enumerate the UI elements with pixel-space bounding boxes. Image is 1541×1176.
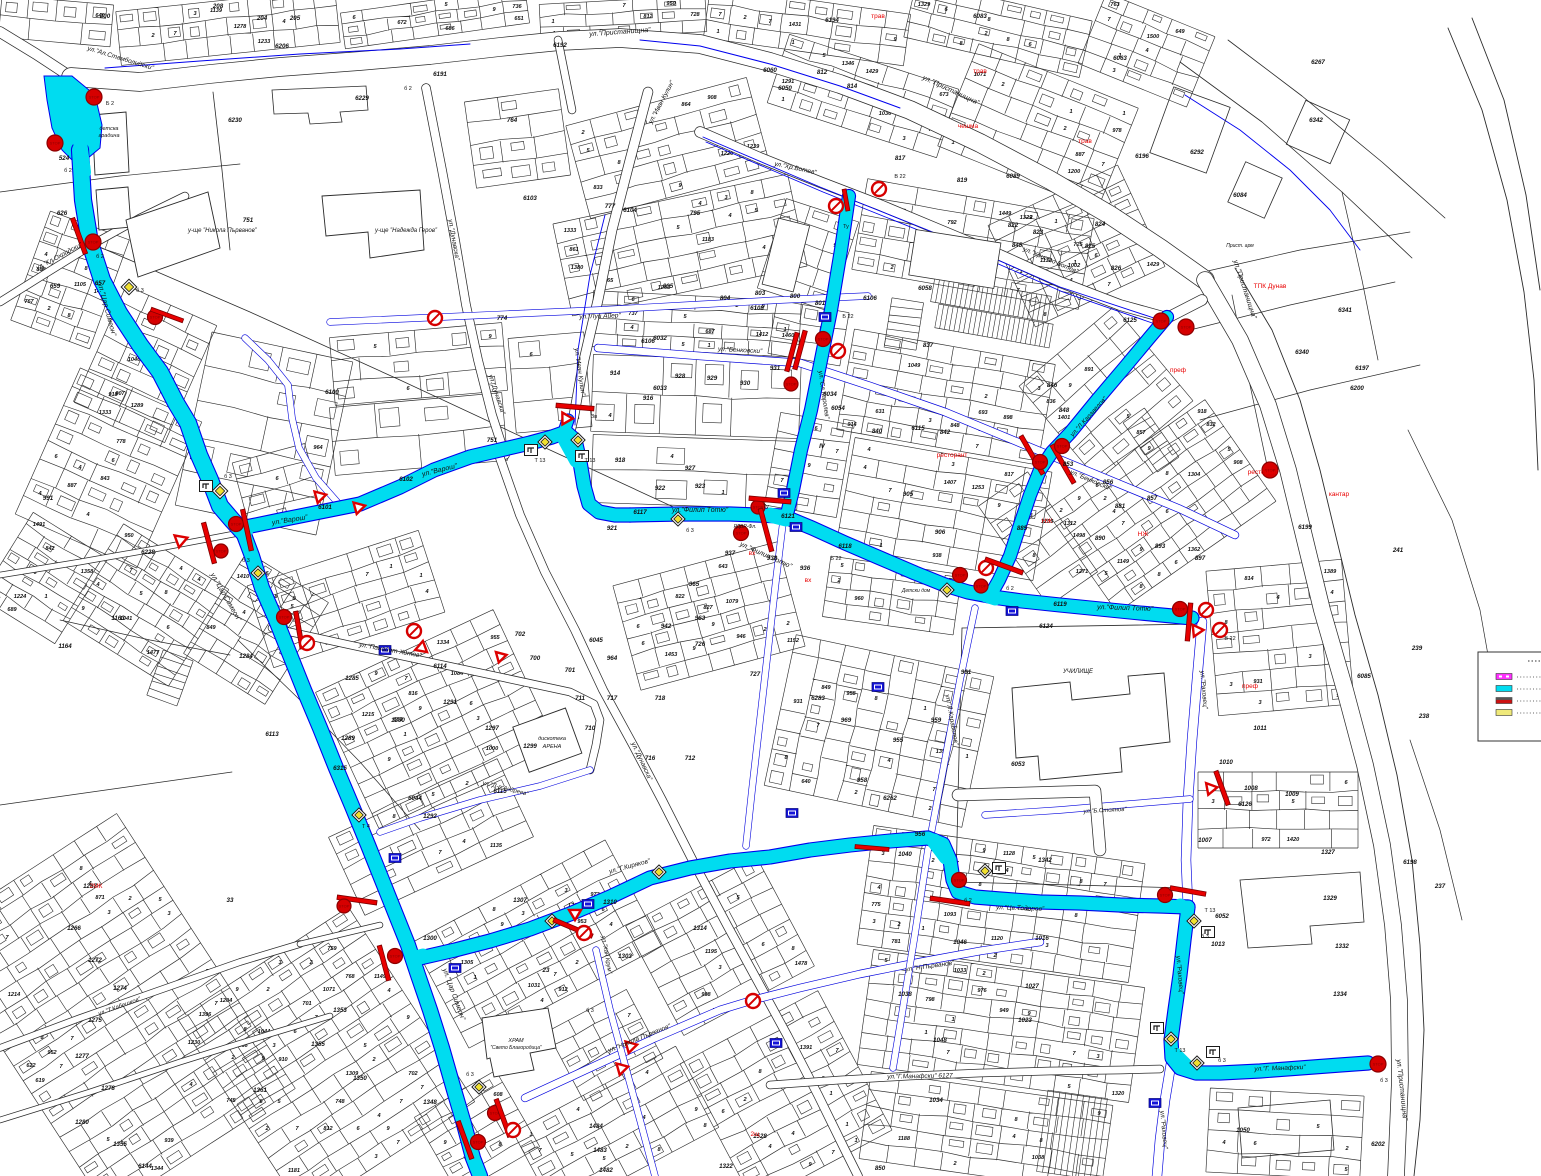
svg-text:1303: 1303 [618, 953, 632, 960]
svg-text:1016: 1016 [1035, 935, 1049, 942]
svg-text:1380: 1380 [571, 265, 584, 271]
svg-text:955: 955 [893, 737, 904, 744]
svg-text:6341: 6341 [1338, 307, 1352, 314]
svg-text:921: 921 [607, 525, 618, 532]
svg-text:НЖ: НЖ [1042, 518, 1053, 525]
svg-text:952: 952 [47, 1050, 57, 1056]
svg-text:6114: 6114 [433, 663, 447, 670]
svg-text:857: 857 [1147, 495, 1158, 502]
svg-text:823: 823 [1033, 229, 1044, 236]
svg-text:1200: 1200 [1068, 169, 1081, 175]
svg-text:1491: 1491 [33, 522, 45, 528]
svg-text:1278: 1278 [234, 24, 247, 30]
svg-text:1214: 1214 [8, 992, 21, 998]
svg-text:871: 871 [95, 895, 104, 901]
svg-text:524: 524 [59, 155, 70, 162]
svg-text:965: 965 [689, 581, 700, 588]
svg-text:б 3: б 3 [1218, 1058, 1226, 1064]
svg-text:1410: 1410 [237, 574, 250, 580]
svg-text:1023: 1023 [1018, 1017, 1032, 1024]
svg-text:826: 826 [1111, 265, 1122, 272]
svg-text:1271: 1271 [1076, 569, 1088, 575]
svg-text:626: 626 [57, 210, 68, 217]
svg-text:1396: 1396 [199, 1012, 212, 1018]
svg-text:6292: 6292 [1190, 149, 1204, 156]
svg-text:712: 712 [685, 755, 696, 762]
svg-text:200: 200 [99, 13, 111, 20]
svg-text:РДВР-Фл.: РДВР-Фл. [734, 524, 757, 530]
svg-text:1304: 1304 [1188, 472, 1201, 478]
svg-text:1120: 1120 [991, 936, 1004, 942]
svg-text:649: 649 [1175, 29, 1185, 35]
svg-text:689: 689 [7, 607, 17, 613]
svg-text:6100: 6100 [325, 389, 339, 396]
svg-text:6106: 6106 [641, 338, 655, 345]
svg-text:6144: 6144 [138, 1163, 152, 1170]
svg-text:961: 961 [961, 669, 972, 676]
svg-text:1289: 1289 [341, 735, 355, 742]
svg-text:1010: 1010 [1219, 759, 1233, 766]
svg-text:891: 891 [1084, 367, 1093, 373]
svg-text:1449: 1449 [999, 211, 1012, 217]
svg-text:6126: 6126 [1238, 801, 1252, 808]
svg-text:1195: 1195 [705, 949, 718, 955]
svg-text:1: 1 [965, 754, 968, 760]
svg-text:1320: 1320 [1112, 1091, 1125, 1097]
svg-text:1484: 1484 [589, 1123, 603, 1130]
svg-text:1275: 1275 [88, 1017, 102, 1024]
svg-text:6089: 6089 [1006, 173, 1020, 180]
svg-text:1: 1 [473, 975, 476, 981]
svg-text:887: 887 [67, 483, 77, 489]
svg-text:1333: 1333 [99, 410, 112, 416]
svg-text:1: 1 [845, 1122, 848, 1128]
svg-text:801: 801 [815, 300, 826, 307]
svg-text:1290: 1290 [391, 717, 405, 724]
svg-text:6229: 6229 [355, 95, 369, 102]
svg-text:848: 848 [950, 423, 960, 429]
svg-text:STOP: STOP [1160, 893, 1171, 898]
svg-text:STOP: STOP [216, 549, 227, 554]
svg-text:у-ще ”Надежда Геров”: у-ще ”Надежда Геров” [374, 228, 438, 234]
svg-text:IV: IV [819, 443, 826, 450]
svg-text:трав: трав [1078, 138, 1092, 145]
svg-text:STOP: STOP [50, 141, 61, 146]
svg-text:1007: 1007 [1198, 837, 1212, 844]
svg-text:STOP: STOP [1181, 325, 1192, 330]
svg-text:1128: 1128 [1003, 851, 1016, 857]
svg-text:1348: 1348 [423, 1099, 437, 1106]
svg-text:918: 918 [108, 392, 118, 398]
svg-text:1329: 1329 [918, 2, 931, 8]
svg-text:822: 822 [1008, 222, 1019, 229]
svg-text:6198: 6198 [1403, 859, 1417, 866]
svg-text:728: 728 [690, 12, 700, 18]
svg-text:657: 657 [95, 280, 106, 287]
svg-text:1346: 1346 [842, 61, 855, 67]
svg-text:STOP: STOP [231, 522, 242, 527]
svg-text:В 22: В 22 [1224, 636, 1235, 642]
svg-text:Т 13: Т 13 [584, 458, 595, 464]
svg-text:Ту: Ту [843, 224, 849, 230]
svg-text:1299: 1299 [523, 743, 537, 750]
svg-text:1: 1 [829, 1091, 832, 1097]
svg-text:ресторант: ресторант [1248, 469, 1279, 476]
svg-text:1420: 1420 [1287, 837, 1300, 843]
svg-text:969: 969 [841, 717, 852, 724]
svg-text:6033: 6033 [653, 385, 667, 392]
svg-text:преф: преф [1170, 367, 1187, 374]
svg-text:812: 812 [817, 69, 828, 76]
svg-text:710: 710 [585, 725, 596, 732]
svg-text:659: 659 [50, 283, 61, 290]
svg-text:864: 864 [681, 102, 691, 108]
svg-text:1274: 1274 [113, 985, 127, 992]
svg-text:Зв: Зв [591, 414, 597, 420]
svg-text:1332: 1332 [1335, 943, 1349, 950]
svg-text:845: 845 [1012, 242, 1023, 249]
svg-text:827: 827 [703, 605, 713, 611]
svg-text:Детски дом: Детски дом [901, 588, 931, 594]
svg-text:Т 4: Т 4 [362, 824, 370, 830]
svg-text:956: 956 [915, 831, 926, 838]
svg-text:STOP: STOP [1057, 444, 1068, 449]
svg-text:842: 842 [45, 546, 55, 552]
svg-text:6083: 6083 [973, 13, 987, 20]
svg-text:840: 840 [872, 428, 883, 435]
svg-text:1389: 1389 [1324, 569, 1337, 575]
svg-text:958: 958 [857, 777, 868, 784]
svg-text:1280: 1280 [75, 1119, 89, 1126]
svg-text:929: 929 [707, 375, 718, 382]
svg-text:978: 978 [1112, 128, 1122, 134]
svg-text:6117: 6117 [633, 509, 647, 516]
svg-text:717: 717 [607, 695, 618, 702]
svg-text:STOP: STOP [89, 95, 100, 100]
svg-text:1266: 1266 [67, 925, 81, 932]
svg-text:б 3: б 3 [136, 288, 144, 294]
svg-text:890: 890 [1095, 535, 1106, 542]
svg-text:ресторант: ресторант [937, 452, 968, 459]
svg-text:б 2: б 2 [96, 254, 104, 260]
svg-text:дискотека: дискотека [538, 736, 566, 742]
svg-text:б 2: б 2 [64, 168, 72, 174]
svg-text:964: 964 [313, 445, 323, 451]
svg-text:6032: 6032 [653, 335, 667, 342]
svg-text:1031: 1031 [528, 983, 540, 989]
svg-text:1500: 1500 [1147, 34, 1160, 40]
svg-text:1429: 1429 [866, 69, 879, 75]
svg-text:795: 795 [690, 210, 701, 217]
svg-text:1149: 1149 [1117, 559, 1130, 565]
svg-text:937: 937 [725, 550, 736, 557]
svg-text:748: 748 [335, 1099, 345, 1105]
svg-text:6121: 6121 [781, 513, 795, 520]
svg-text:918: 918 [1197, 409, 1207, 415]
svg-text:преф: преф [1242, 683, 1259, 690]
svg-text:1000: 1000 [486, 746, 499, 752]
svg-text:Б 2: Б 2 [106, 101, 114, 107]
svg-text:детска: детска [100, 126, 119, 132]
svg-text:914: 914 [847, 422, 857, 428]
svg-text:6101: 6101 [318, 504, 332, 511]
svg-text:946: 946 [736, 634, 746, 640]
svg-text:814: 814 [1244, 576, 1254, 582]
svg-text:6058: 6058 [918, 285, 932, 292]
svg-text:716: 716 [645, 755, 656, 762]
svg-text:931: 931 [770, 365, 781, 372]
svg-text:ул.”Г.Манафски” 6127: ул.”Г.Манафски” 6127 [886, 1072, 953, 1080]
svg-text:1: 1 [389, 564, 392, 570]
svg-text:1233: 1233 [258, 39, 271, 45]
svg-text:1391: 1391 [800, 1045, 812, 1051]
svg-text:б 3: б 3 [686, 528, 694, 534]
svg-text:6202: 6202 [1371, 1141, 1385, 1148]
svg-text:822: 822 [675, 594, 685, 600]
svg-text:910: 910 [278, 1057, 288, 1063]
svg-text:б 3: б 3 [1201, 934, 1209, 940]
svg-text:846: 846 [1047, 382, 1058, 389]
svg-text:ХРАМ: ХРАМ [507, 1038, 524, 1044]
svg-text:1431: 1431 [789, 22, 801, 28]
svg-text:6230: 6230 [228, 117, 242, 124]
svg-text:817: 817 [895, 155, 906, 162]
svg-text:964: 964 [607, 655, 618, 662]
svg-text:819: 819 [957, 177, 968, 184]
svg-text:6228: 6228 [141, 549, 155, 556]
svg-text:897: 897 [1195, 555, 1206, 562]
svg-text:1011: 1011 [1253, 725, 1267, 732]
svg-text:1: 1 [921, 926, 924, 932]
svg-text:1310: 1310 [603, 899, 617, 906]
svg-text:кантар: кантар [1329, 491, 1350, 498]
svg-text:631: 631 [875, 409, 884, 415]
svg-text:963: 963 [695, 615, 706, 622]
svg-text:930: 930 [740, 380, 751, 387]
svg-text:774: 774 [497, 315, 508, 322]
svg-text:1040: 1040 [898, 851, 912, 858]
svg-text:STOP: STOP [736, 531, 747, 536]
svg-text:1329: 1329 [1323, 895, 1337, 902]
svg-text:6262: 6262 [883, 795, 897, 802]
svg-text:711: 711 [575, 695, 585, 702]
svg-text:998: 998 [701, 992, 711, 998]
svg-text:842: 842 [940, 429, 951, 436]
svg-text:608: 608 [493, 1092, 503, 1098]
svg-text:1: 1 [403, 732, 406, 738]
svg-text:STOP: STOP [1035, 460, 1046, 465]
svg-text:898: 898 [1003, 415, 1013, 421]
svg-text:843: 843 [100, 476, 110, 482]
svg-text:6104: 6104 [623, 207, 637, 214]
svg-text:1353: 1353 [333, 1007, 347, 1014]
svg-text:800: 800 [790, 293, 801, 300]
svg-text:1048: 1048 [933, 1037, 947, 1044]
svg-text:1009: 1009 [1285, 791, 1299, 798]
svg-text:1: 1 [791, 40, 794, 46]
svg-text:б 3: б 3 [586, 1008, 594, 1014]
svg-text:б 2: б 2 [964, 898, 972, 904]
svg-text:Б 22: Б 22 [842, 314, 853, 320]
svg-text:6060: 6060 [763, 67, 777, 74]
svg-text:б 2: б 2 [1006, 586, 1014, 592]
svg-text:1050: 1050 [1236, 1127, 1250, 1134]
svg-text:701: 701 [565, 667, 576, 674]
svg-text:6194: 6194 [825, 17, 839, 24]
svg-text:1278: 1278 [101, 1085, 115, 1092]
svg-text:1477: 1477 [147, 650, 160, 656]
svg-text:727: 727 [750, 671, 761, 678]
svg-text:949: 949 [999, 1008, 1009, 1014]
svg-text:6102: 6102 [399, 476, 413, 483]
svg-text:6267: 6267 [1311, 59, 1325, 66]
svg-text:6054: 6054 [831, 405, 845, 412]
svg-text:1: 1 [781, 97, 784, 103]
svg-text:885: 885 [1017, 525, 1028, 532]
svg-text:1105: 1105 [74, 282, 87, 288]
svg-text:STOP: STOP [786, 382, 797, 387]
svg-text:1334: 1334 [1333, 991, 1347, 998]
svg-text:950: 950 [124, 533, 134, 539]
svg-text:1033: 1033 [954, 968, 967, 974]
svg-text:Прист. арм: Прист. арм [1226, 243, 1254, 249]
svg-text:1291: 1291 [443, 699, 457, 706]
svg-text:861: 861 [569, 247, 578, 253]
svg-text:1297: 1297 [485, 725, 499, 732]
svg-text:781: 781 [891, 939, 900, 945]
svg-text:1215: 1215 [362, 712, 375, 718]
svg-text:33: 33 [227, 897, 234, 904]
svg-text:972: 972 [1261, 837, 1271, 843]
svg-text:1483: 1483 [593, 1147, 607, 1154]
svg-text:STOP: STOP [955, 573, 966, 578]
svg-text:2МК: 2МК [90, 883, 103, 890]
svg-text:STOP: STOP [88, 240, 99, 245]
svg-text:1322: 1322 [719, 1163, 733, 1170]
svg-text:STOP: STOP [818, 337, 829, 342]
svg-text:751: 751 [487, 437, 498, 444]
svg-text:1478: 1478 [795, 961, 808, 967]
svg-text:204: 204 [256, 15, 268, 22]
svg-text:702: 702 [408, 1071, 418, 1077]
svg-text:1334: 1334 [437, 640, 450, 646]
svg-text:6050: 6050 [778, 85, 792, 92]
svg-text:2щ: 2щ [751, 1131, 761, 1138]
svg-text:6206: 6206 [275, 43, 289, 50]
svg-text:1333: 1333 [564, 228, 577, 234]
svg-text:687: 687 [705, 329, 715, 335]
svg-text:1: 1 [783, 327, 786, 333]
svg-text:1277: 1277 [75, 1053, 89, 1060]
svg-text:953: 953 [577, 919, 587, 925]
svg-text:1: 1 [551, 19, 554, 25]
svg-text:1224: 1224 [14, 594, 27, 600]
svg-text:686: 686 [445, 26, 455, 32]
svg-text:893: 893 [1155, 543, 1166, 550]
svg-text:812: 812 [643, 14, 653, 20]
svg-text:938: 938 [932, 553, 942, 559]
svg-text:643: 643 [718, 564, 728, 570]
svg-text:1351: 1351 [486, 0, 498, 1]
svg-text:918: 918 [615, 457, 626, 464]
svg-text:825: 825 [1085, 243, 1096, 250]
svg-text:6115: 6115 [911, 425, 925, 432]
svg-text:6063: 6063 [1113, 55, 1127, 62]
svg-text:6108: 6108 [750, 305, 764, 312]
svg-text:775: 775 [871, 902, 881, 908]
svg-text:6053: 6053 [1011, 761, 1025, 768]
svg-text:833: 833 [593, 185, 603, 191]
svg-text:6044: 6044 [408, 795, 422, 802]
svg-text:1292: 1292 [423, 813, 437, 820]
svg-text:б 3: б 3 [242, 558, 250, 564]
svg-text:1482: 1482 [599, 1167, 613, 1174]
svg-text:6113: 6113 [265, 731, 279, 738]
svg-text:Т 13: Т 13 [1204, 908, 1215, 914]
svg-text:трав: трав [871, 13, 885, 20]
svg-text:942: 942 [661, 623, 672, 630]
svg-text:”Свето Благородица”: ”Свето Благородица” [490, 1045, 542, 1051]
svg-text:6034: 6034 [823, 391, 837, 398]
svg-text:1289: 1289 [131, 403, 144, 409]
svg-text:763: 763 [1110, 2, 1120, 8]
svg-text:1305: 1305 [461, 960, 474, 966]
svg-text:812: 812 [323, 1126, 333, 1132]
svg-text:619: 619 [35, 1078, 45, 1084]
svg-text:640: 640 [801, 779, 811, 785]
svg-text:1: 1 [924, 1030, 927, 1036]
svg-text:1253: 1253 [972, 485, 985, 491]
svg-text:1: 1 [854, 1138, 857, 1144]
svg-text:237: 237 [1434, 883, 1446, 890]
svg-text:6340: 6340 [1295, 349, 1309, 356]
svg-text:STOP: STOP [1373, 1062, 1384, 1067]
svg-text:1429: 1429 [1147, 262, 1160, 268]
svg-text:701: 701 [302, 1001, 311, 1007]
svg-text:928: 928 [675, 373, 686, 380]
svg-text:1362: 1362 [1188, 547, 1201, 553]
svg-text:б 3: б 3 [466, 1072, 474, 1078]
svg-text:651: 651 [514, 16, 523, 22]
svg-text:1093: 1093 [944, 912, 957, 918]
svg-text:1350: 1350 [353, 1075, 367, 1082]
svg-text:745: 745 [226, 1098, 236, 1104]
svg-text:1: 1 [1069, 109, 1072, 115]
svg-text:938: 938 [767, 555, 778, 562]
svg-text:6342: 6342 [1309, 117, 1323, 124]
svg-text:1412: 1412 [756, 332, 769, 338]
svg-text:STOP: STOP [954, 878, 965, 883]
svg-text:778: 778 [116, 439, 126, 445]
svg-text:817: 817 [1004, 472, 1014, 478]
svg-text:836: 836 [1046, 399, 1056, 405]
svg-text:STOP: STOP [390, 954, 401, 959]
svg-text:1498: 1498 [1073, 533, 1086, 539]
svg-text:1355: 1355 [311, 1041, 325, 1048]
svg-text:1344: 1344 [151, 1166, 164, 1172]
svg-text:1307: 1307 [513, 897, 527, 904]
svg-text:853: 853 [1063, 461, 1074, 468]
svg-text:1: 1 [44, 594, 47, 600]
svg-text:1204: 1204 [220, 998, 233, 1004]
svg-text:STOP: STOP [1156, 319, 1167, 324]
svg-text:887: 887 [1075, 152, 1085, 158]
svg-text:922: 922 [655, 485, 666, 492]
svg-text:1361: 1361 [253, 1087, 267, 1094]
svg-text:градина: градина [98, 133, 119, 139]
svg-text:1314: 1314 [693, 925, 707, 932]
svg-text:777: 777 [605, 203, 616, 210]
